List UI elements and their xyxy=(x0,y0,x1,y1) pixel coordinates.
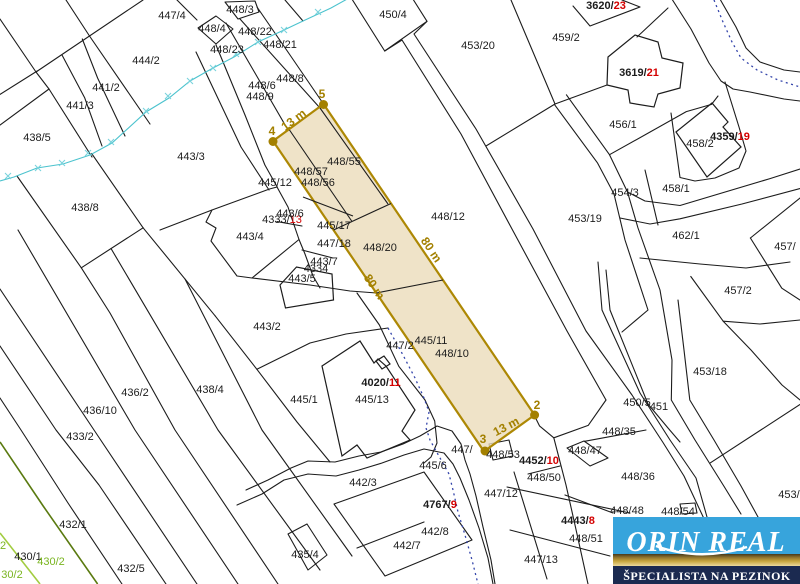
svg-text:443/5: 443/5 xyxy=(288,273,316,285)
svg-text:447/: 447/ xyxy=(451,444,473,456)
svg-text:436/2: 436/2 xyxy=(121,387,149,399)
svg-text:433/2: 433/2 xyxy=(66,431,94,443)
svg-text:432/1: 432/1 xyxy=(59,519,87,531)
svg-text:454/3: 454/3 xyxy=(611,187,639,199)
svg-text:448/12: 448/12 xyxy=(431,211,465,223)
svg-text:2: 2 xyxy=(534,398,541,412)
svg-text:462/1: 462/1 xyxy=(672,230,700,242)
svg-text:4: 4 xyxy=(269,124,276,138)
svg-text:448/53: 448/53 xyxy=(486,449,520,461)
svg-text:448/56: 448/56 xyxy=(301,177,335,189)
svg-text:448/23: 448/23 xyxy=(210,44,244,56)
svg-text:448/47: 448/47 xyxy=(568,445,602,457)
svg-text:448/10: 448/10 xyxy=(435,348,469,360)
svg-text:448/54: 448/54 xyxy=(661,506,695,518)
svg-text:430/2: 430/2 xyxy=(37,556,65,568)
svg-text:445/12: 445/12 xyxy=(258,177,292,189)
svg-text:453/20: 453/20 xyxy=(461,40,495,52)
svg-text:442/3: 442/3 xyxy=(349,477,377,489)
svg-text:4452/10: 4452/10 xyxy=(519,455,559,467)
svg-text:448/57: 448/57 xyxy=(294,166,328,178)
svg-text:448/55: 448/55 xyxy=(327,156,361,168)
svg-text:450/4: 450/4 xyxy=(379,9,407,21)
svg-text:448/9: 448/9 xyxy=(246,91,274,103)
svg-text:448/8: 448/8 xyxy=(276,73,304,85)
svg-text:445/11: 445/11 xyxy=(415,335,448,347)
svg-text:4767/9: 4767/9 xyxy=(423,499,457,511)
svg-text:450/5: 450/5 xyxy=(623,397,651,409)
svg-text:453/18: 453/18 xyxy=(693,366,727,378)
svg-text:456/1: 456/1 xyxy=(609,119,637,131)
svg-text:445/17: 445/17 xyxy=(317,220,351,232)
svg-text:448/48: 448/48 xyxy=(610,505,644,517)
svg-text:442/7: 442/7 xyxy=(393,540,421,552)
svg-text:441/3: 441/3 xyxy=(66,100,94,112)
svg-text:451: 451 xyxy=(650,401,668,413)
svg-text:432/5: 432/5 xyxy=(117,563,145,575)
svg-text:3: 3 xyxy=(480,432,487,446)
svg-text:443/4: 443/4 xyxy=(236,231,264,243)
svg-text:447/18: 447/18 xyxy=(317,238,351,250)
svg-text:ŠPECIALISTA NA PEZINOK: ŠPECIALISTA NA PEZINOK xyxy=(623,569,791,583)
svg-text:2: 2 xyxy=(0,540,6,552)
svg-text:445/6: 445/6 xyxy=(419,460,447,472)
svg-text:453/19: 453/19 xyxy=(568,213,602,225)
svg-text:445/13: 445/13 xyxy=(355,394,389,406)
svg-text:447/4: 447/4 xyxy=(158,10,186,22)
svg-text:3619/21: 3619/21 xyxy=(619,67,659,79)
svg-text:438/4: 438/4 xyxy=(196,384,224,396)
svg-text:447/2: 447/2 xyxy=(386,340,414,352)
svg-text:448/20: 448/20 xyxy=(363,242,397,254)
svg-text:443/6: 443/6 xyxy=(276,208,304,220)
svg-text:5: 5 xyxy=(319,87,326,101)
svg-text:448/35: 448/35 xyxy=(602,426,636,438)
svg-text:448/4: 448/4 xyxy=(198,23,226,35)
svg-text:458/1: 458/1 xyxy=(662,183,690,195)
svg-text:459/2: 459/2 xyxy=(552,32,580,44)
svg-text:448/3: 448/3 xyxy=(226,4,254,16)
svg-text:444/2: 444/2 xyxy=(132,55,160,67)
svg-text:442/8: 442/8 xyxy=(421,526,449,538)
svg-text:443/3: 443/3 xyxy=(177,151,205,163)
svg-text:448/51: 448/51 xyxy=(569,533,603,545)
svg-text:3620/23: 3620/23 xyxy=(586,0,626,12)
svg-text:457/: 457/ xyxy=(774,241,796,253)
svg-text:30/2: 30/2 xyxy=(1,569,22,581)
svg-text:453/: 453/ xyxy=(778,489,800,501)
svg-text:436/10: 436/10 xyxy=(83,405,117,417)
svg-text:441/2: 441/2 xyxy=(92,82,120,94)
svg-text:438/8: 438/8 xyxy=(71,202,99,214)
svg-text:4359/19: 4359/19 xyxy=(710,131,750,143)
svg-text:447/12: 447/12 xyxy=(484,488,518,500)
svg-text:4020/11: 4020/11 xyxy=(361,377,400,389)
svg-text:448/36: 448/36 xyxy=(621,471,655,483)
svg-text:435/4: 435/4 xyxy=(291,549,319,561)
svg-text:447/13: 447/13 xyxy=(524,554,558,566)
svg-text:448/21: 448/21 xyxy=(263,39,297,51)
svg-text:448/50: 448/50 xyxy=(527,472,561,484)
svg-text:457/2: 457/2 xyxy=(724,285,752,297)
svg-text:4443/8: 4443/8 xyxy=(561,515,595,527)
svg-text:443/2: 443/2 xyxy=(253,321,281,333)
svg-text:448/22: 448/22 xyxy=(238,26,272,38)
svg-text:438/5: 438/5 xyxy=(23,132,51,144)
svg-text:445/1: 445/1 xyxy=(290,394,318,406)
svg-text:ORIN REAL: ORIN REAL xyxy=(626,527,785,558)
